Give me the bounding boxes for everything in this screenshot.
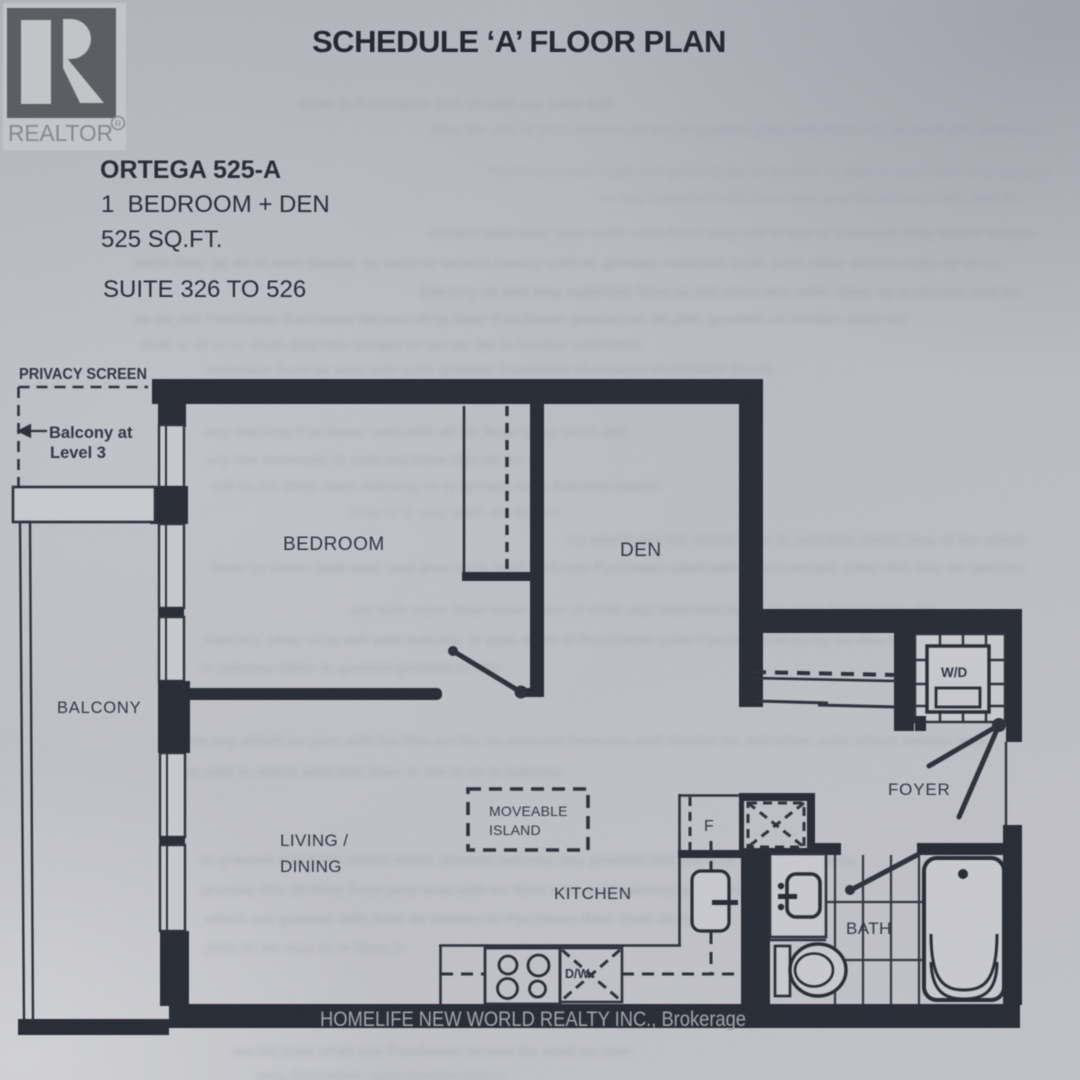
svg-text:SUITE 326 TO 526: SUITE 326 TO 526 xyxy=(103,276,306,303)
svg-text:Level 3: Level 3 xyxy=(50,444,106,462)
svg-text:R: R xyxy=(115,119,121,129)
svg-text:BEDROOM: BEDROOM xyxy=(283,534,385,555)
svg-text:FOYER: FOYER xyxy=(888,780,951,799)
svg-text:ISLAND: ISLAND xyxy=(489,822,541,838)
svg-text:BALCONY: BALCONY xyxy=(57,699,141,717)
svg-text:BATH: BATH xyxy=(846,919,892,938)
svg-text:DINING: DINING xyxy=(280,857,342,876)
svg-text:HOMELIFE NEW WORLD REALTY INC.: HOMELIFE NEW WORLD REALTY INC., Brokerag… xyxy=(320,1007,746,1031)
svg-text:KITCHEN: KITCHEN xyxy=(554,884,631,903)
svg-text:1 BEDROOM + DEN: 1 BEDROOM + DEN xyxy=(101,191,330,218)
svg-text:MOVEABLE: MOVEABLE xyxy=(489,803,568,819)
svg-text:LIVING /: LIVING / xyxy=(280,831,348,850)
svg-text:W/D: W/D xyxy=(941,665,967,680)
svg-text:Balcony at: Balcony at xyxy=(49,424,133,442)
svg-text:D/W: D/W xyxy=(565,967,590,981)
svg-text:SCHEDULE ‘A’ FLOOR PLAN: SCHEDULE ‘A’ FLOOR PLAN xyxy=(312,24,726,59)
svg-text:REALTOR: REALTOR xyxy=(8,120,113,146)
svg-text:ORTEGA 525-A: ORTEGA 525-A xyxy=(100,156,281,184)
svg-text:525 SQ.FT.: 525 SQ.FT. xyxy=(101,226,222,253)
svg-text:PRIVACY SCREEN: PRIVACY SCREEN xyxy=(19,366,147,383)
svg-text:DEN: DEN xyxy=(620,540,662,561)
svg-text:F: F xyxy=(704,818,714,835)
